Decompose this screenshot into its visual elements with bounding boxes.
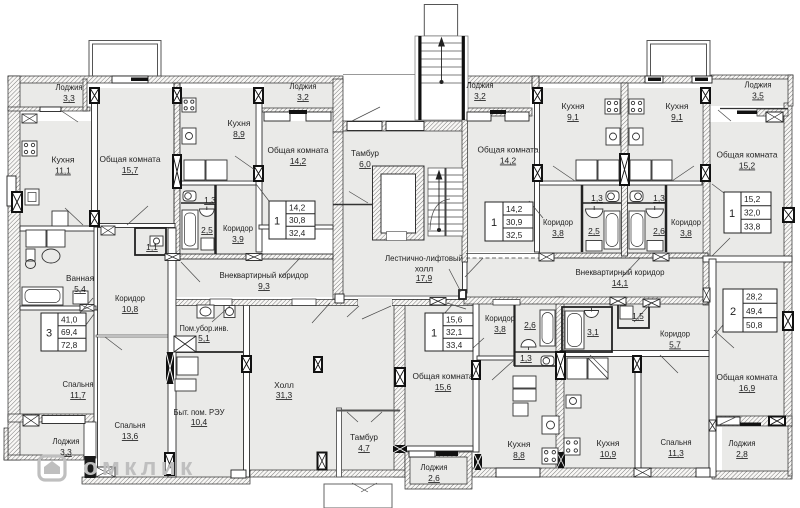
svg-text:14,2: 14,2 (506, 204, 523, 214)
svg-text:1,3: 1,3 (653, 193, 665, 203)
svg-text:32,0: 32,0 (744, 208, 761, 218)
svg-text:Лоджия: Лоджия (290, 81, 317, 91)
svg-text:10,8: 10,8 (122, 304, 139, 314)
svg-text:2,6: 2,6 (428, 473, 440, 483)
svg-text:15,6: 15,6 (446, 315, 463, 325)
svg-text:Лоджия: Лоджия (729, 438, 756, 448)
svg-text:15,7: 15,7 (122, 165, 139, 175)
svg-text:14,2: 14,2 (290, 156, 307, 166)
svg-text:31,3: 31,3 (276, 390, 293, 400)
svg-text:Внеквартирный коридор: Внеквартирный коридор (576, 267, 665, 277)
svg-text:3,5: 3,5 (752, 91, 764, 101)
svg-text:10,4: 10,4 (191, 417, 208, 427)
svg-text:72,8: 72,8 (61, 340, 78, 350)
svg-text:41,0: 41,0 (61, 315, 78, 325)
svg-text:1: 1 (431, 328, 437, 340)
svg-text:32,1: 32,1 (446, 327, 463, 337)
svg-text:30,9: 30,9 (506, 217, 523, 227)
svg-text:омклик: омклик (83, 454, 196, 481)
svg-text:3,8: 3,8 (494, 324, 506, 334)
svg-text:30,8: 30,8 (289, 215, 306, 225)
svg-text:4,7: 4,7 (358, 443, 370, 453)
svg-text:Спальня: Спальня (63, 379, 94, 389)
svg-text:10,9: 10,9 (600, 449, 617, 459)
svg-text:Ванная: Ванная (66, 273, 94, 283)
svg-text:Кухня: Кухня (597, 438, 620, 448)
svg-text:15,2: 15,2 (744, 194, 761, 204)
svg-text:Коридор: Коридор (660, 329, 690, 339)
svg-text:Общая комната: Общая комната (717, 150, 778, 160)
svg-text:3,2: 3,2 (474, 91, 486, 101)
svg-text:Быт. пом. РЭУ: Быт. пом. РЭУ (174, 407, 226, 417)
svg-text:69,4: 69,4 (61, 327, 78, 337)
svg-text:Общая комната: Общая комната (100, 154, 161, 164)
svg-text:Коридор: Коридор (543, 217, 573, 227)
svg-text:9,1: 9,1 (671, 112, 683, 122)
svg-text:Кухня: Кухня (666, 101, 689, 111)
svg-text:Лоджия: Лоджия (745, 80, 772, 90)
svg-text:9,1: 9,1 (567, 112, 579, 122)
svg-text:Коридор: Коридор (485, 313, 515, 323)
svg-text:1,3: 1,3 (520, 353, 532, 363)
svg-text:11,7: 11,7 (70, 390, 86, 400)
svg-text:Коридор: Коридор (115, 293, 145, 303)
svg-text:2,5: 2,5 (201, 225, 213, 235)
svg-text:Лоджия: Лоджия (56, 82, 83, 92)
svg-text:Общая комната: Общая комната (413, 371, 474, 381)
svg-text:8,8: 8,8 (513, 450, 525, 460)
svg-text:16,9: 16,9 (739, 383, 756, 393)
svg-text:Спальня: Спальня (115, 420, 146, 430)
svg-text:1: 1 (274, 216, 280, 228)
svg-text:Лестнично-лифтовый: Лестнично-лифтовый (385, 253, 463, 263)
svg-text:17,9: 17,9 (416, 273, 433, 283)
svg-text:2,5: 2,5 (588, 226, 600, 236)
svg-text:1,5: 1,5 (632, 311, 644, 321)
svg-text:Общая комната: Общая комната (717, 372, 778, 382)
svg-text:2,8: 2,8 (736, 449, 748, 459)
svg-text:Кухня: Кухня (52, 155, 75, 165)
svg-text:33,8: 33,8 (744, 221, 761, 231)
svg-text:Холл: Холл (274, 380, 294, 390)
svg-text:2: 2 (730, 306, 736, 318)
svg-text:Лоджия: Лоджия (467, 80, 494, 90)
svg-text:Пом.убор.инв.: Пом.убор.инв. (180, 323, 229, 333)
svg-text:28,2: 28,2 (746, 292, 763, 302)
svg-text:49,4: 49,4 (746, 306, 763, 316)
svg-text:13,6: 13,6 (122, 431, 139, 441)
svg-text:2,6: 2,6 (653, 226, 665, 236)
svg-text:1: 1 (491, 217, 497, 229)
svg-text:Спальня: Спальня (661, 437, 692, 447)
svg-text:1: 1 (729, 208, 735, 220)
svg-text:Тамбур: Тамбур (350, 432, 378, 442)
svg-text:32,5: 32,5 (506, 230, 523, 240)
svg-text:Кухня: Кухня (562, 101, 585, 111)
svg-text:15,2: 15,2 (739, 161, 756, 171)
svg-text:1,3: 1,3 (204, 195, 216, 205)
svg-text:1,3: 1,3 (591, 193, 603, 203)
svg-text:5,4: 5,4 (74, 284, 86, 294)
svg-text:32,4: 32,4 (289, 228, 306, 238)
svg-text:33,4: 33,4 (446, 340, 463, 350)
svg-text:Внеквартирный коридор: Внеквартирный коридор (220, 270, 309, 280)
svg-text:Кухня: Кухня (228, 118, 251, 128)
svg-text:3,1: 3,1 (587, 327, 599, 337)
svg-text:14,2: 14,2 (500, 156, 517, 166)
svg-text:3,8: 3,8 (680, 228, 692, 238)
svg-text:5,7: 5,7 (669, 340, 681, 350)
svg-text:Тамбур: Тамбур (351, 148, 379, 158)
svg-text:14,2: 14,2 (289, 203, 306, 213)
svg-text:1,1: 1,1 (146, 242, 158, 252)
svg-text:11,1: 11,1 (55, 166, 71, 176)
svg-text:3,2: 3,2 (297, 92, 309, 102)
svg-text:3,9: 3,9 (232, 234, 244, 244)
svg-text:9,3: 9,3 (258, 281, 270, 291)
svg-text:Общая комната: Общая комната (478, 145, 539, 155)
svg-text:5,1: 5,1 (198, 333, 210, 343)
svg-text:Кухня: Кухня (508, 439, 531, 449)
svg-text:Коридор: Коридор (223, 223, 253, 233)
svg-text:8,9: 8,9 (233, 129, 245, 139)
svg-text:2,6: 2,6 (524, 320, 536, 330)
svg-text:3: 3 (46, 328, 52, 340)
svg-text:Лоджия: Лоджия (53, 436, 80, 446)
svg-text:Коридор: Коридор (671, 217, 701, 227)
svg-text:15,6: 15,6 (435, 382, 452, 392)
svg-text:3,3: 3,3 (63, 93, 75, 103)
svg-text:11,3: 11,3 (668, 448, 684, 458)
svg-text:50,8: 50,8 (746, 320, 763, 330)
svg-text:3,8: 3,8 (552, 228, 564, 238)
svg-text:14,1: 14,1 (612, 278, 629, 288)
svg-text:Общая комната: Общая комната (268, 145, 329, 155)
svg-text:Лоджия: Лоджия (421, 462, 448, 472)
svg-text:6,0: 6,0 (359, 159, 371, 169)
svg-text:холл: холл (415, 264, 433, 274)
